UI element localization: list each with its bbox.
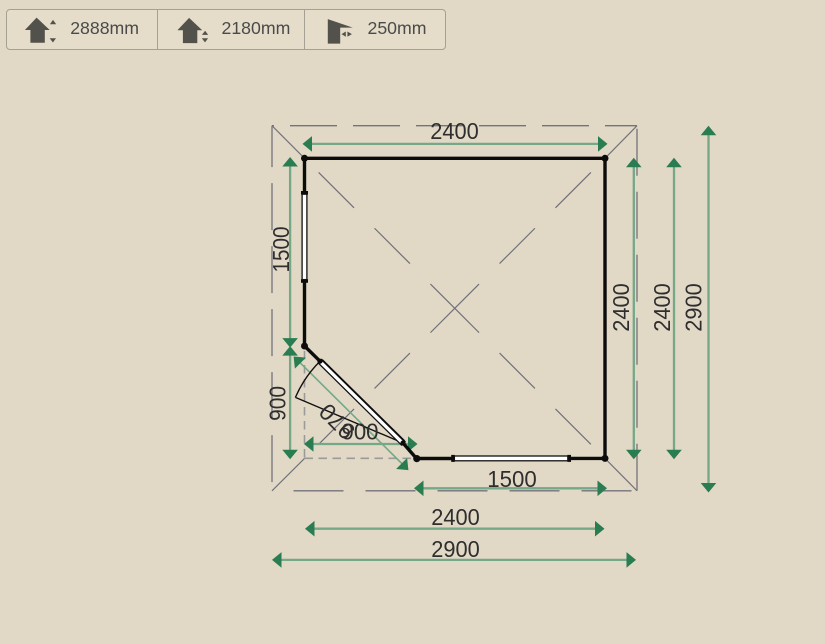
svg-text:900: 900 — [265, 386, 291, 421]
svg-text:2400: 2400 — [649, 283, 675, 332]
svg-text:2900: 2900 — [431, 536, 480, 562]
svg-text:2900: 2900 — [681, 283, 707, 332]
svg-text:2400: 2400 — [430, 118, 479, 144]
svg-text:2400: 2400 — [431, 504, 480, 530]
svg-text:1500: 1500 — [487, 466, 537, 492]
svg-text:1500: 1500 — [268, 227, 294, 273]
svg-text:2400: 2400 — [608, 283, 634, 332]
